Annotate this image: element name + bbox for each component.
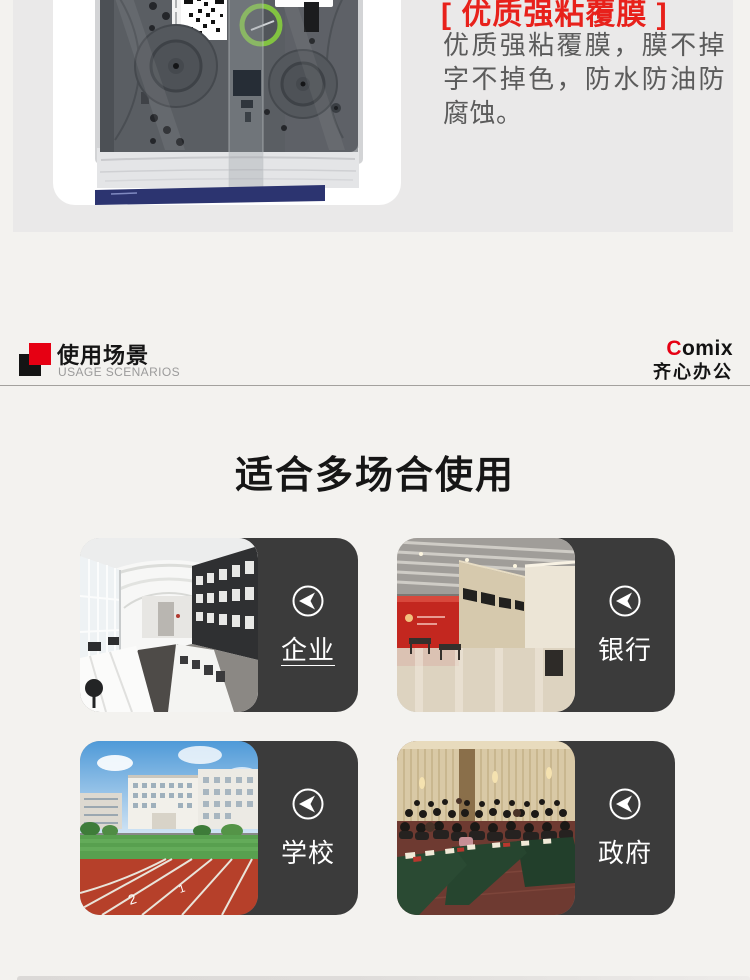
card-caption-panel: 政府 xyxy=(575,741,675,915)
usage-card-school: 2 1 学校 xyxy=(80,741,358,915)
usage-card-government: 政府 xyxy=(397,741,675,915)
office-photo xyxy=(80,538,258,712)
product-photo xyxy=(53,0,401,205)
usage-card-bank: 银行 xyxy=(397,538,675,712)
card-label: 企业 xyxy=(281,630,335,667)
card-caption-panel: 企业 xyxy=(258,538,358,712)
section-subtitle: USAGE SCENARIOS xyxy=(58,365,180,379)
bank-photo xyxy=(397,538,575,712)
hero-section: [ 优质强粘覆膜 ] 优质强粘覆膜，膜不掉字不掉色，防水防油防腐蚀。 xyxy=(13,0,733,232)
card-caption-panel: 学校 xyxy=(258,741,358,915)
card-caption-panel: 银行 xyxy=(575,538,675,712)
next-section-edge xyxy=(17,976,750,980)
label-cassette-illustration xyxy=(53,0,401,205)
comix-brand-logo: Comix 齐心办公 xyxy=(653,338,733,381)
section-logo-red-square xyxy=(29,343,51,365)
usage-card-enterprise: 企业 xyxy=(80,538,358,712)
brand-letters-omix: omix xyxy=(682,337,733,360)
government-meeting-photo xyxy=(397,741,575,915)
back-arrow-icon xyxy=(608,787,642,821)
brand-wordmark: Comix xyxy=(653,338,733,359)
brand-letter-c: C xyxy=(666,337,682,360)
usage-heading: 适合多场合使用 xyxy=(0,444,750,499)
brand-chinese-name: 齐心办公 xyxy=(653,363,733,381)
feature-description: 优质强粘覆膜，膜不掉字不掉色，防水防油防腐蚀。 xyxy=(443,28,725,130)
card-label: 政府 xyxy=(598,833,652,870)
card-label: 银行 xyxy=(598,630,652,667)
back-arrow-icon xyxy=(291,584,325,618)
card-label: 学校 xyxy=(281,833,335,870)
back-arrow-icon xyxy=(608,584,642,618)
section-divider-line xyxy=(0,385,750,386)
school-photo: 2 1 xyxy=(80,741,258,915)
back-arrow-icon xyxy=(291,787,325,821)
